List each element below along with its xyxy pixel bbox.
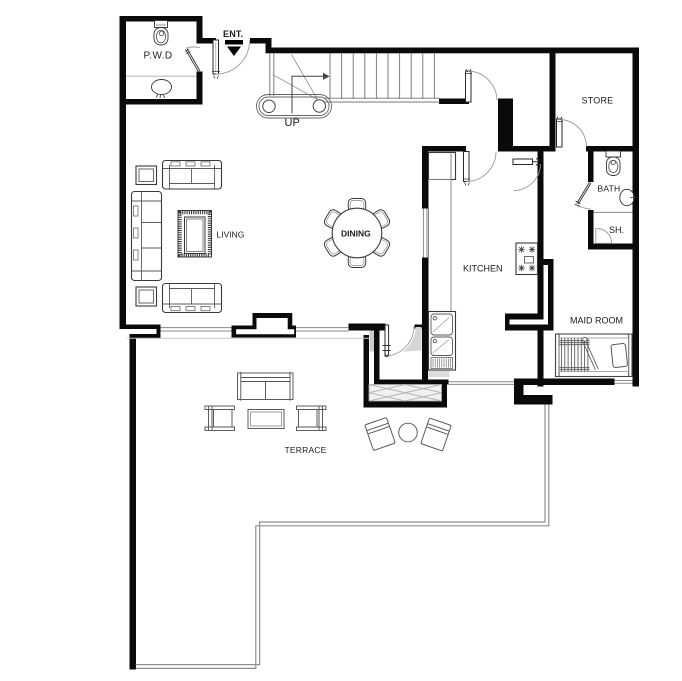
- svg-text:DINING: DINING: [341, 229, 371, 239]
- svg-text:BATH: BATH: [598, 184, 621, 194]
- svg-text:ENT.: ENT.: [223, 29, 243, 39]
- svg-text:UP: UP: [285, 117, 300, 129]
- svg-text:SH.: SH.: [609, 225, 624, 235]
- svg-text:TERRACE: TERRACE: [285, 445, 327, 455]
- svg-text:P.W.D: P.W.D: [144, 51, 173, 62]
- svg-text:MAID ROOM: MAID ROOM: [570, 316, 623, 326]
- svg-text:STORE: STORE: [582, 96, 614, 106]
- svg-text:KITCHEN: KITCHEN: [463, 264, 503, 274]
- svg-text:LIVING: LIVING: [217, 230, 245, 240]
